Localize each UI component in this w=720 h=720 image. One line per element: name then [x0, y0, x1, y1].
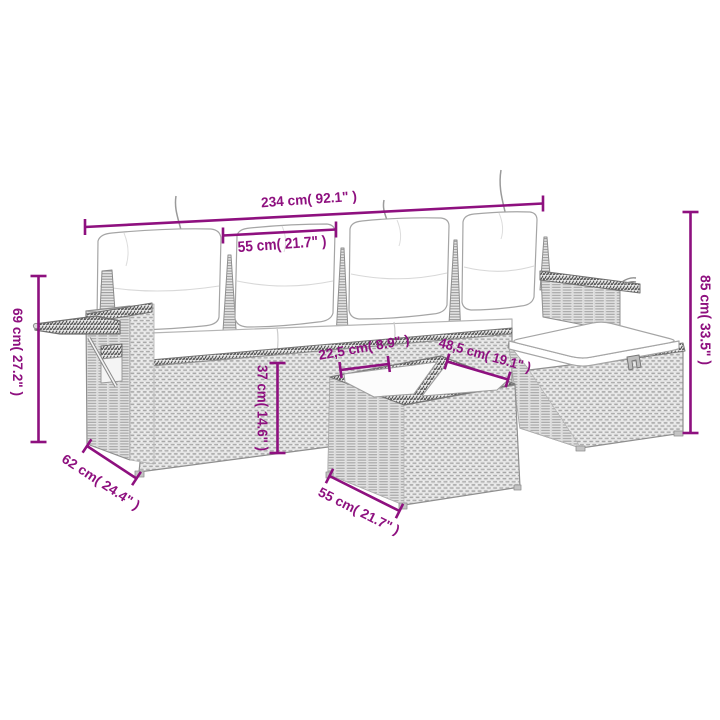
svg-text:69 cm( 27.2" ): 69 cm( 27.2" )	[10, 308, 25, 396]
svg-text:85 cm( 33.5" ): 85 cm( 33.5" )	[696, 275, 713, 365]
svg-text:37 cm( 14.6" ): 37 cm( 14.6" )	[253, 365, 269, 451]
